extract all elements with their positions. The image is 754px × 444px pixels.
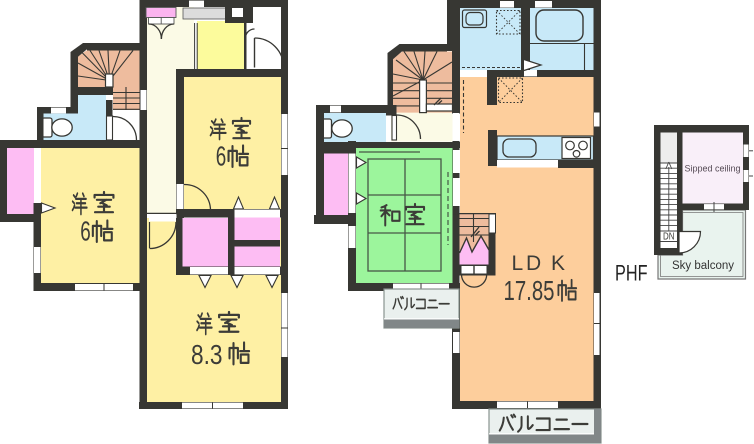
svg-text:K: K [551, 252, 565, 275]
svg-text:6: 6 [216, 141, 227, 172]
svg-text:17.85: 17.85 [504, 275, 555, 306]
svg-text:6: 6 [80, 216, 91, 247]
svg-text:Sky balcony: Sky balcony [672, 260, 734, 272]
svg-text:DN: DN [663, 232, 675, 243]
svg-text:8.3: 8.3 [191, 339, 223, 370]
svg-text:L: L [512, 252, 524, 275]
svg-text:PHF: PHF [615, 261, 648, 286]
svg-text:Sipped ceiling: Sipped ceiling [684, 164, 740, 174]
svg-text:D: D [526, 252, 541, 275]
